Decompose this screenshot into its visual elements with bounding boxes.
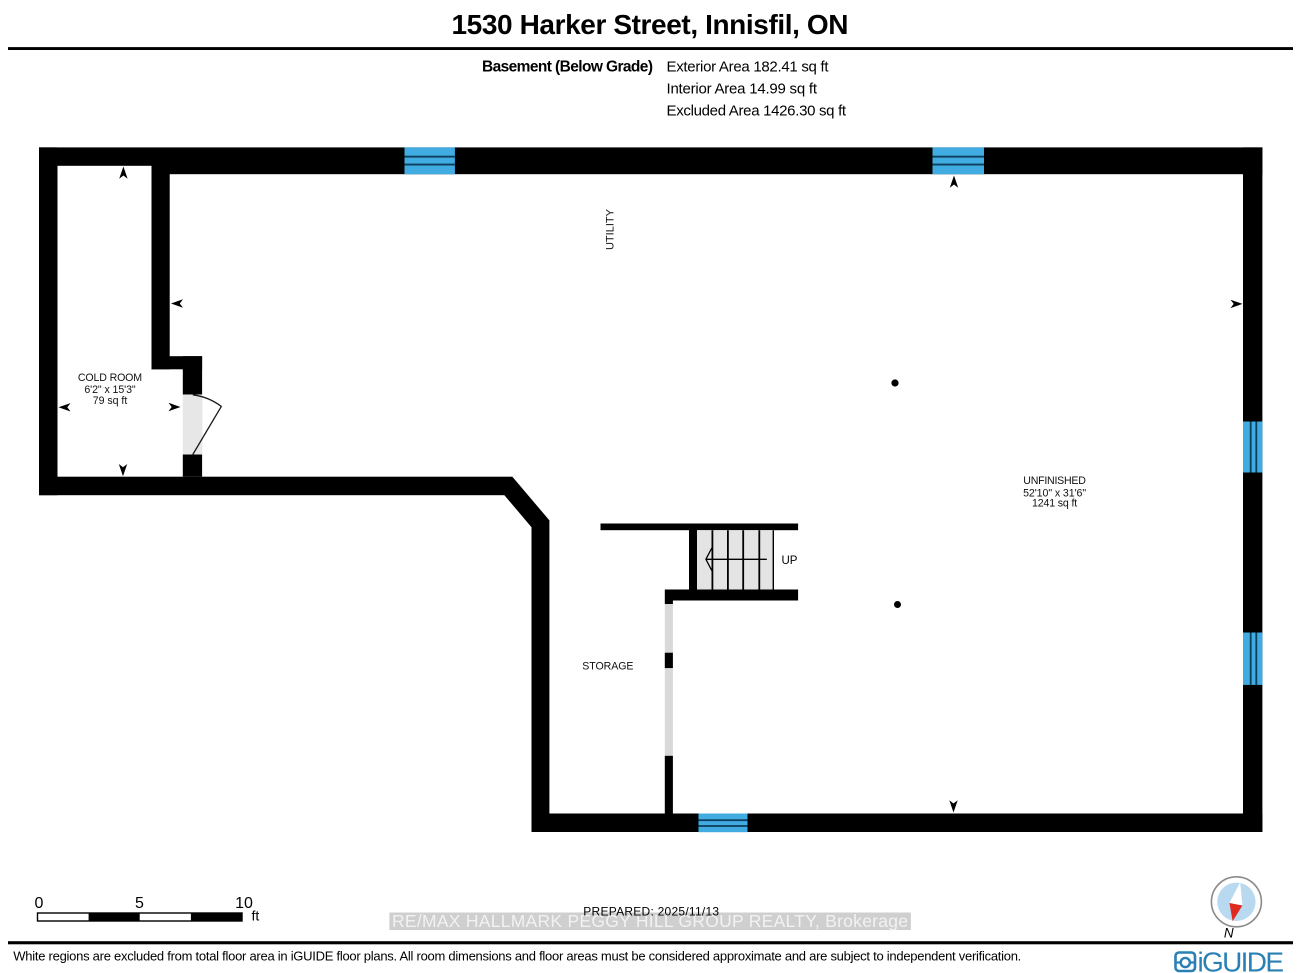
svg-text:Interior Area 14.99 sq ft: Interior Area 14.99 sq ft <box>667 81 818 98</box>
svg-text:White regions are excluded fro: White regions are excluded from total fl… <box>13 949 1021 964</box>
svg-text:1241 sq ft: 1241 sq ft <box>1032 498 1077 510</box>
svg-text:COLD ROOM: COLD ROOM <box>78 372 142 384</box>
svg-text:ft: ft <box>252 908 260 924</box>
svg-text:UTILITY: UTILITY <box>605 208 617 250</box>
svg-text:PREPARED: 2025/11/13: PREPARED: 2025/11/13 <box>583 905 719 919</box>
svg-text:Excluded Area 1426.30 sq ft: Excluded Area 1426.30 sq ft <box>667 103 847 120</box>
svg-text:N: N <box>1224 925 1234 940</box>
svg-text:UP: UP <box>782 555 798 567</box>
svg-text:STORAGE: STORAGE <box>582 661 633 673</box>
svg-text:79 sq ft: 79 sq ft <box>93 395 128 407</box>
svg-text:UNFINISHED: UNFINISHED <box>1023 475 1086 487</box>
svg-text:Exterior Area 182.41 sq ft: Exterior Area 182.41 sq ft <box>667 59 830 76</box>
svg-text:1530 Harker Street, Innisfil,: 1530 Harker Street, Innisfil, ON <box>452 9 849 40</box>
svg-text:5: 5 <box>135 895 144 912</box>
svg-text:10: 10 <box>235 895 253 912</box>
svg-text:Basement (Below Grade): Basement (Below Grade) <box>482 59 653 76</box>
svg-text:iGUIDE: iGUIDE <box>1198 947 1285 973</box>
svg-text:0: 0 <box>35 895 44 912</box>
svg-text:6'2" x 15'3": 6'2" x 15'3" <box>84 384 136 396</box>
